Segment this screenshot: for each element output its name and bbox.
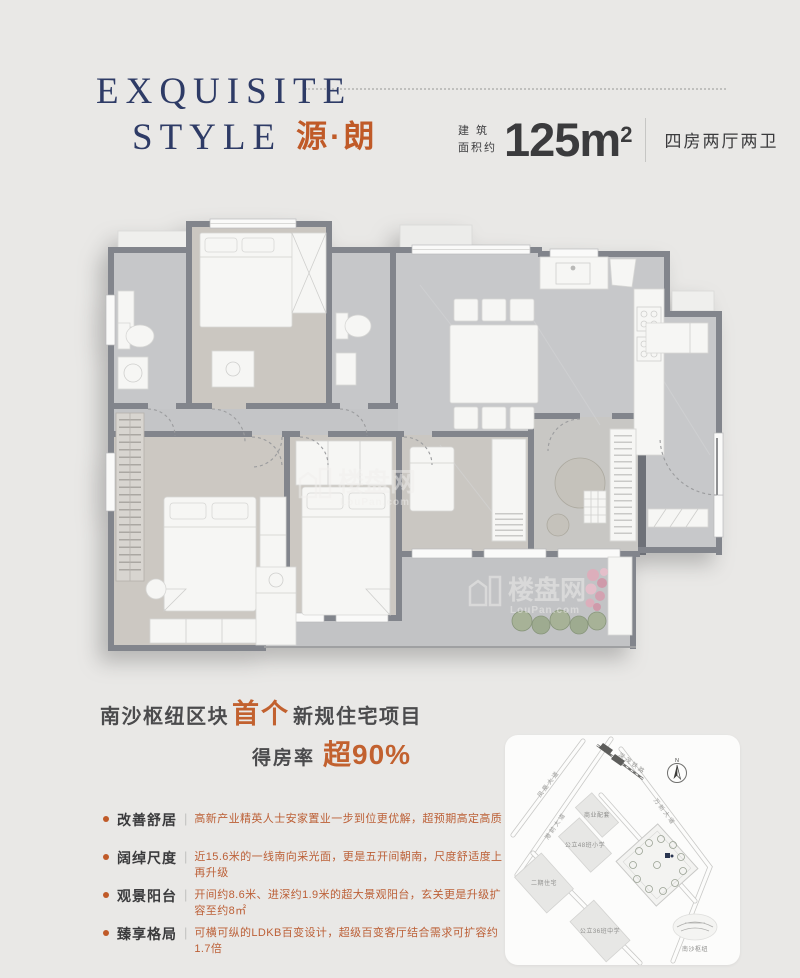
feature-row-4: 臻享格局 | 可横可纵的LDKB百变设计，超级百变客厅结合需求可扩容约1.7倍 (103, 924, 505, 958)
feature-separator: | (184, 849, 187, 864)
compass-icon: N (668, 758, 687, 783)
feature-label: 臻享格局 (117, 924, 177, 944)
floor-plan-svg: 楼盘网 LouPan.com 楼盘网 LouPan.com (60, 195, 740, 665)
bullet-dot (103, 854, 109, 860)
rate-line: 得房率 超90% (252, 733, 411, 773)
rate-value: 超90% (323, 733, 411, 773)
feature-label: 观景阳台 (117, 886, 177, 906)
tagline: 南沙枢纽区块 首个 新规住宅项目 (100, 692, 422, 731)
title-en-line2: STYLE (132, 118, 282, 159)
tagline-pre: 南沙枢纽区块 (100, 700, 229, 729)
block-primary-label: 公立48班小学 (565, 841, 605, 849)
area-superscript: 2 (620, 122, 631, 147)
feature-separator: | (184, 811, 187, 826)
tagline-post: 新规住宅项目 (293, 700, 422, 729)
block-middle-label: 公立36班中学 (580, 927, 620, 935)
svg-text:LouPan.com: LouPan.com (510, 605, 580, 616)
svg-text:LouPan.com: LouPan.com (340, 497, 410, 508)
bedroom-2 (296, 437, 392, 615)
rate-label: 得房率 (252, 743, 315, 770)
area-prefix-bottom: 面积约 (458, 140, 497, 157)
dining-area (450, 299, 538, 429)
feature-separator: | (184, 925, 187, 940)
title-cn: 源·朗 (296, 111, 377, 156)
title-block: EXQUISITE STYLE 源·朗 (96, 72, 377, 158)
road-label-3: 万新大道 (652, 797, 678, 827)
area-prefix: 建 筑 面积约 (458, 123, 497, 156)
project-marker (665, 853, 670, 858)
feature-desc: 高新产业精英人士安家置业一步到位更优解，超预期高定高质 (194, 810, 502, 828)
map-blocks: 商业配套 公立48班小学 二期住宅 公立36班中学 (515, 793, 630, 962)
block-biz-label: 商业配套 (584, 811, 610, 819)
feature-row-3: 观景阳台 | 开间约8.6米、进深约1.9米的超大景观阳台，玄关更是升级扩容至约… (103, 886, 505, 920)
title-en-line1: EXQUISITE (96, 72, 377, 113)
bullet-dot (103, 892, 109, 898)
road-label-1: 凤凰大道 (536, 769, 562, 799)
feature-label: 阔绰尺度 (117, 848, 177, 868)
tagline-highlight: 首个 (232, 692, 290, 731)
area-prefix-top: 建 筑 (458, 123, 497, 140)
feature-separator: | (184, 887, 187, 902)
flyer-page: EXQUISITE STYLE 源·朗 建 筑 面积约 125m2 四房两厅两卫 (0, 0, 800, 978)
svg-text:楼盘网: 楼盘网 (338, 467, 416, 497)
area-group: 建 筑 面积约 125m2 四房两厅两卫 (458, 116, 778, 163)
area-value: 125m2 (504, 116, 631, 163)
feature-desc: 开间约8.6米、进深约1.9米的超大景观阳台，玄关更是升级扩容至约8㎡ (194, 886, 505, 920)
station-label: 南沙枢纽 (682, 945, 708, 953)
floor-plan: 楼盘网 LouPan.com 楼盘网 LouPan.com (60, 195, 740, 665)
location-map-svg: 深茂铁路 凤凰大道 港前大道 万新大道 商业配套 公立48班小学 二期住宅 公立… (505, 735, 740, 965)
bullet-dot (103, 930, 109, 936)
block-phase2-label: 二期住宅 (531, 879, 557, 887)
feature-row-2: 阔绰尺度 | 近15.6米的一线南向采光面，更是五开间朝南，尺度舒适度上再升级 (103, 848, 505, 882)
svg-text:楼盘网: 楼盘网 (508, 575, 586, 605)
feature-desc: 近15.6米的一线南向采光面，更是五开间朝南，尺度舒适度上再升级 (194, 848, 505, 882)
feature-label: 改善舒居 (117, 810, 177, 830)
feature-desc: 可横可纵的LDKB百变设计，超级百变客厅结合需求可扩容约1.7倍 (194, 924, 505, 958)
header-vertical-divider (645, 118, 646, 162)
unit-type-label: 四房两厅两卫 (664, 127, 778, 152)
hall-wardrobe (116, 413, 144, 581)
bullet-dot (103, 816, 109, 822)
compass-n-label: N (675, 758, 679, 764)
location-map: 深茂铁路 凤凰大道 港前大道 万新大道 商业配套 公立48班小学 二期住宅 公立… (505, 735, 740, 965)
feature-row-1: 改善舒居 | 高新产业精英人士安家置业一步到位更优解，超预期高定高质 (103, 810, 505, 830)
